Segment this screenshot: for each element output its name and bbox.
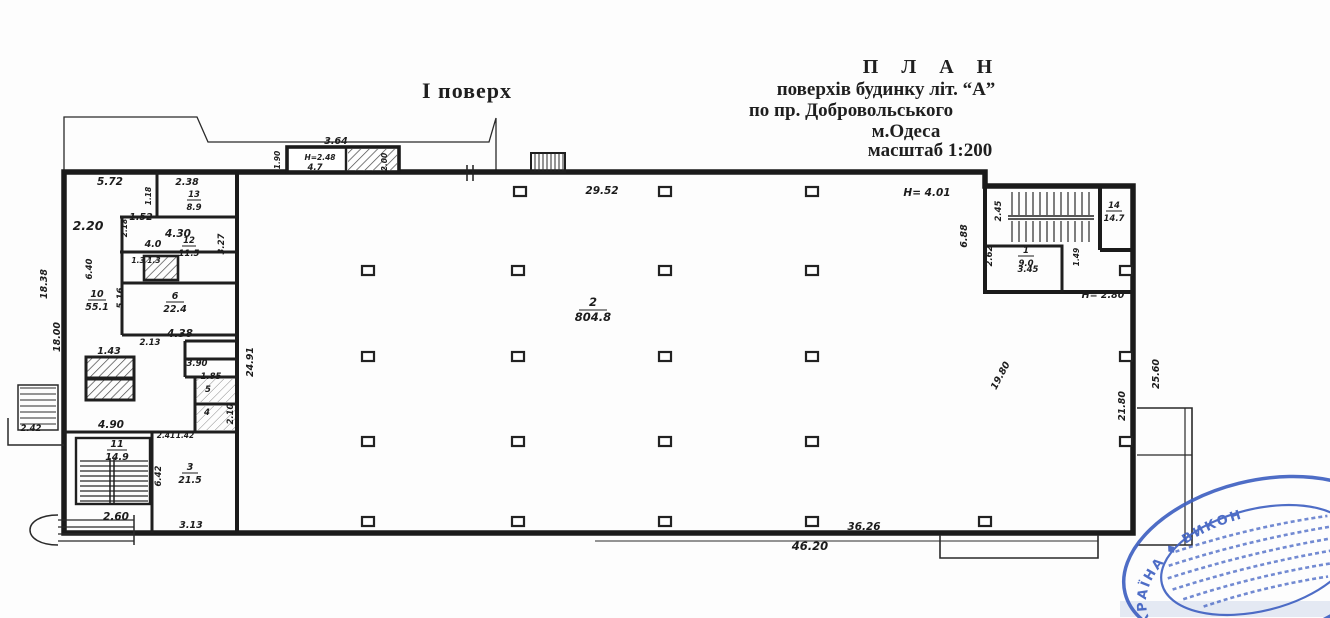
dim-2-45: 2.45 — [994, 200, 1004, 221]
dim-3-13: 3.13 — [179, 520, 203, 531]
room-6-number: 6 — [172, 291, 179, 302]
height-hall: Н= 4.01 — [903, 187, 950, 199]
dim-2-00: 2.00 — [380, 153, 389, 172]
floor-plan-svg: 5.72 1.18 2.38 1.52 2.20 4.30 2.18 4.0 1… — [0, 0, 1330, 618]
hall-columns — [362, 187, 1132, 526]
dim-2-13: 2.13 — [140, 338, 161, 348]
scanned-floor-plan-page: І поверх П Л А Н поверхів будинку літ. “… — [0, 0, 1330, 618]
room-14-area: 14.7 — [1104, 214, 1125, 224]
dim-h-2-48: Н=2.48 — [304, 153, 335, 162]
dim-1-18: 1.18 — [144, 187, 153, 206]
room-10-number: 10 — [90, 289, 104, 300]
room-hall-area: 804.8 — [575, 310, 611, 324]
room-13-area: 8.9 — [186, 203, 201, 213]
dim-2-38: 2.38 — [175, 177, 199, 188]
room-11-area: 14.9 — [105, 452, 129, 463]
dim-1-3-pair: 1.3 1.3 — [131, 256, 160, 265]
dim-19-80: 19.80 — [989, 360, 1013, 392]
dim-2-62: 2.62 — [985, 245, 995, 266]
dim-5-72: 5.72 — [97, 176, 123, 188]
dim-2-42: 2.42 — [21, 424, 42, 434]
dim-3-27: 3.27 — [217, 233, 227, 254]
official-stamp: СЬКОЇ РАДИ ♦ УКРАЇНА ♦ ВИКОН — [1106, 450, 1330, 618]
room-4-number: 4 — [203, 408, 210, 418]
room-1-number: 1 — [1023, 246, 1029, 256]
dim-3-90: 3.90 — [187, 359, 208, 369]
dim-6-88: 6.88 — [959, 224, 970, 248]
dim-18-38: 18.38 — [39, 269, 50, 299]
dim-1-90: 1.90 — [273, 151, 282, 170]
dim-2-18: 2.18 — [120, 219, 129, 238]
dim-24-91: 24.91 — [245, 347, 256, 377]
grille-top — [531, 153, 565, 172]
room-3-area: 21.5 — [178, 475, 202, 486]
room-11-number: 11 — [110, 439, 123, 450]
floor-label: І поверх — [422, 78, 512, 104]
outer-walls — [64, 172, 1133, 533]
dim-29-52: 29.52 — [585, 185, 618, 197]
dim-2-10: 2.10 — [226, 403, 236, 424]
height-right: Н= 2.80 — [1082, 290, 1125, 301]
dim-2-60: 2.60 — [103, 511, 129, 523]
room-hall-number: 2 — [589, 295, 597, 309]
dim-18-00: 18.00 — [52, 322, 63, 352]
room-10-area: 55.1 — [85, 302, 108, 313]
right-annex — [1137, 408, 1192, 545]
dim-46-20: 46.20 — [791, 539, 828, 553]
room-1-area: 9.0 — [1018, 259, 1033, 269]
shaft-blocks — [86, 357, 134, 400]
dim-2-20: 2.20 — [73, 218, 104, 233]
dim-1-43: 1.43 — [97, 346, 121, 357]
dim-3-64: 3.64 — [324, 136, 348, 147]
room-5-number: 5 — [205, 385, 211, 395]
stamp-arc-text: СЬКОЇ РАДИ ♦ УКРАЇНА ♦ ВИКОН — [1117, 505, 1273, 618]
room-13-number: 13 — [188, 190, 200, 200]
dim-4-0: 4.0 — [144, 239, 162, 250]
title-line-street: по пр. Добровольського — [749, 100, 953, 122]
room-3-number: 3 — [187, 462, 194, 473]
exterior-stair-left — [8, 385, 64, 445]
room-12-number: 12 — [183, 236, 195, 246]
room-14-number: 14 — [1108, 201, 1120, 211]
room-6-area: 22.4 — [163, 304, 187, 315]
title-line-building: поверхів будинку літ. “А” — [777, 79, 996, 101]
dim-6-42: 6.42 — [154, 465, 164, 486]
dim-4-7: 4.7 — [306, 163, 322, 173]
dim-36-26: 36.26 — [847, 521, 880, 533]
dim-4-90: 4.90 — [97, 419, 124, 431]
dim-1-49: 1.49 — [1072, 248, 1081, 267]
dim-21-80: 21.80 — [1117, 391, 1128, 421]
bottom-right-extension — [940, 535, 1098, 558]
dim-1-42: 1.42 — [176, 431, 195, 440]
dim-1-52: 1.52 — [129, 212, 153, 223]
title-line-scale: масштаб 1:200 — [868, 140, 992, 162]
dim-2-41: 2.41 — [157, 431, 176, 440]
room-12-area: 11.5 — [179, 249, 200, 259]
title-line-plan: П Л А Н — [863, 56, 1001, 79]
dim-5-16: 5.16 — [116, 287, 126, 308]
dim-6-40: 6.40 — [85, 258, 95, 279]
dim-4-38: 4.38 — [166, 328, 193, 340]
dim-1-85: 1.85 — [201, 372, 222, 382]
dim-25-60: 25.60 — [1151, 359, 1162, 389]
